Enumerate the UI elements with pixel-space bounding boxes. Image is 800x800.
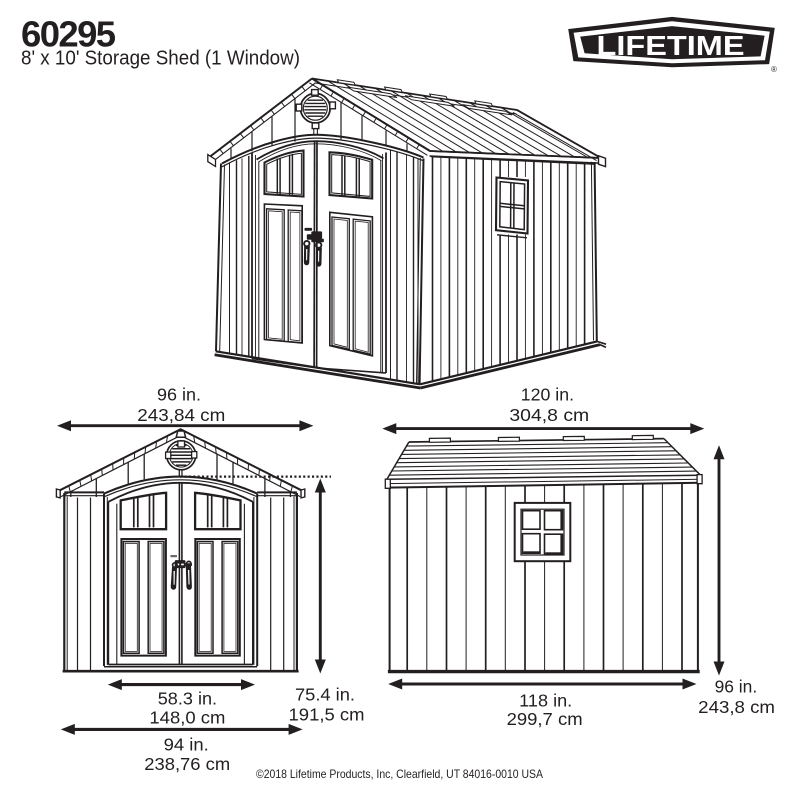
svg-text:©2018 Lifetime Products, Inc,: ©2018 Lifetime Products, Inc, Clearfield… <box>256 767 543 781</box>
svg-text:148,0 cm: 148,0 cm <box>149 708 225 728</box>
svg-text:243,84 cm: 243,84 cm <box>137 405 225 425</box>
svg-text:299,7 cm: 299,7 cm <box>507 709 583 729</box>
svg-text:118 in.: 118 in. <box>519 690 572 710</box>
svg-text:120 in.: 120 in. <box>521 384 574 404</box>
svg-text:238,76 cm: 238,76 cm <box>144 754 230 774</box>
svg-text:®: ® <box>771 65 777 74</box>
svg-text:58.3 in.: 58.3 in. <box>158 689 217 709</box>
svg-text:75.4 in.: 75.4 in. <box>295 685 355 705</box>
svg-text:304,8 cm: 304,8 cm <box>509 405 589 425</box>
svg-text:8' x 10' Storage Shed (1 Windo: 8' x 10' Storage Shed (1 Window) <box>21 47 300 70</box>
svg-text:94 in.: 94 in. <box>164 735 209 755</box>
svg-text:191,5 cm: 191,5 cm <box>289 704 365 724</box>
svg-text:96 in.: 96 in. <box>157 384 201 404</box>
svg-text:96 in.: 96 in. <box>715 677 758 697</box>
svg-text:243,8 cm: 243,8 cm <box>698 697 775 717</box>
svg-text:LIFETIME: LIFETIME <box>597 30 745 61</box>
